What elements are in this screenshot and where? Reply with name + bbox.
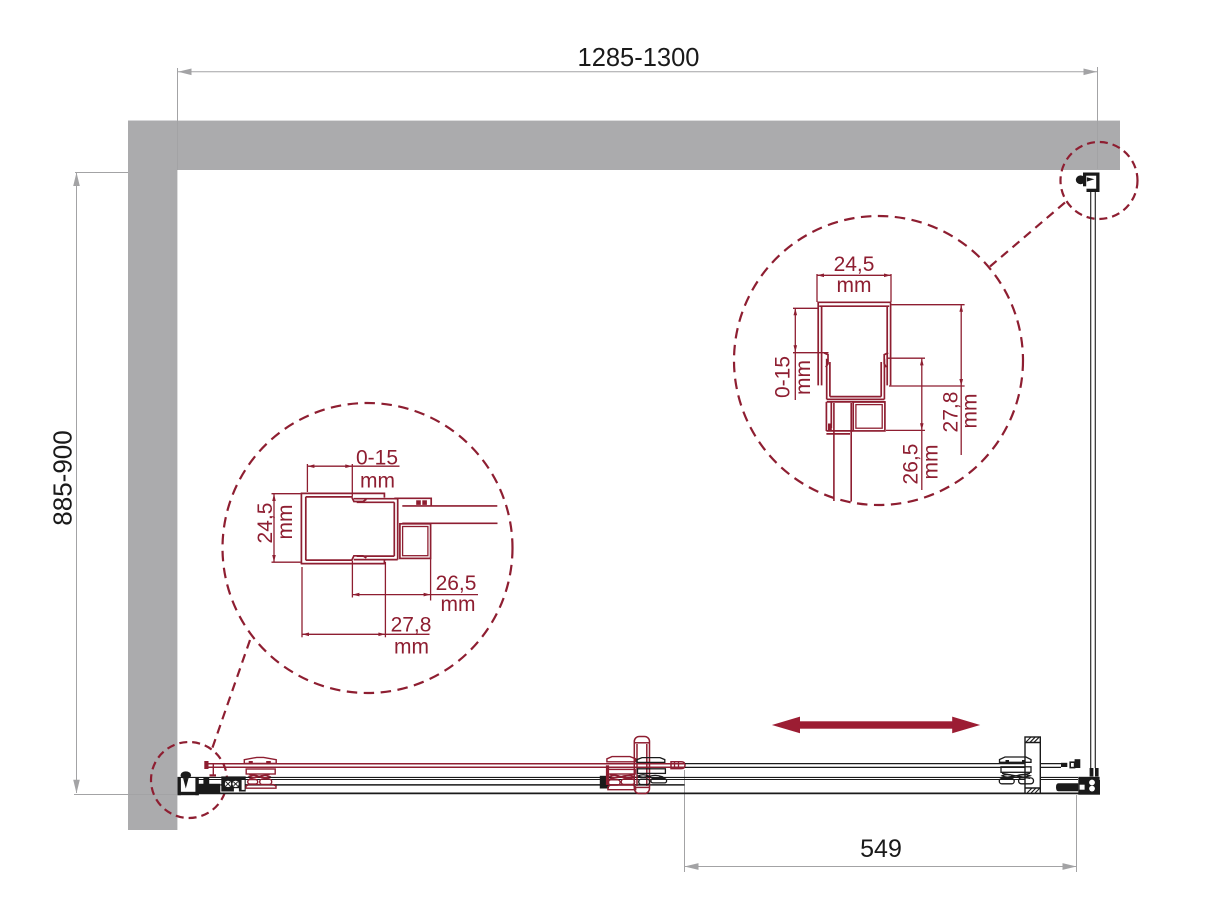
svg-text:0-15: 0-15 <box>356 447 398 470</box>
svg-text:mm: mm <box>274 505 297 540</box>
svg-text:24,5: 24,5 <box>834 253 875 276</box>
svg-text:1285-1300: 1285-1300 <box>578 44 700 72</box>
svg-text:mm: mm <box>441 593 476 616</box>
svg-text:mm: mm <box>394 636 429 659</box>
svg-text:885-900: 885-900 <box>48 430 78 525</box>
svg-text:mm: mm <box>360 470 395 493</box>
svg-text:mm: mm <box>920 445 943 480</box>
svg-text:26,5: 26,5 <box>436 572 477 595</box>
svg-text:mm: mm <box>959 394 982 429</box>
svg-text:mm: mm <box>792 360 815 395</box>
svg-text:mm: mm <box>837 274 872 297</box>
svg-text:27,8: 27,8 <box>391 614 432 637</box>
svg-text:549: 549 <box>860 835 902 863</box>
